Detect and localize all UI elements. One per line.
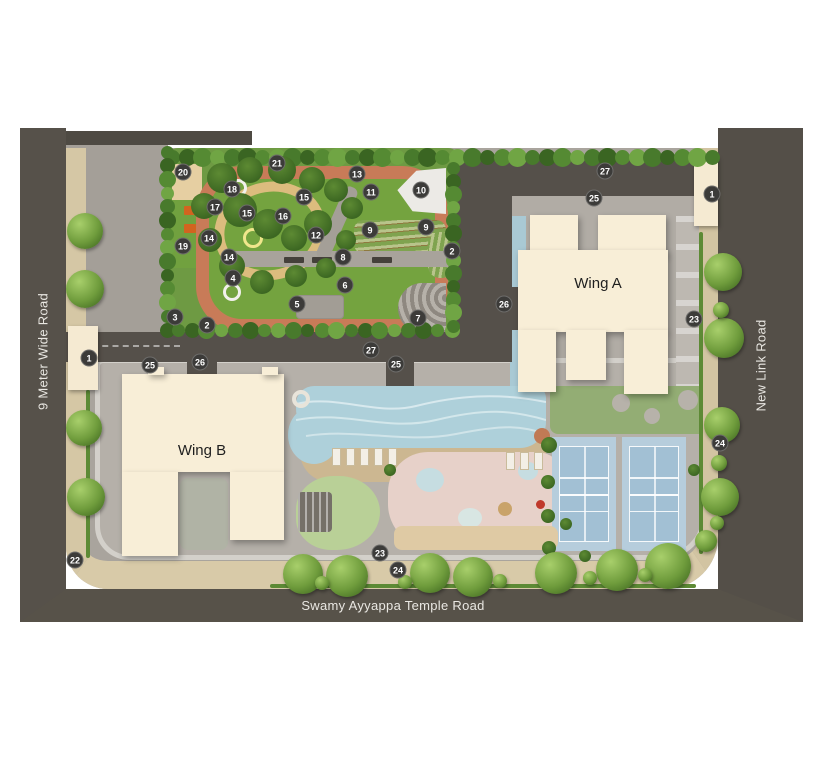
wing-a-building [598, 215, 666, 255]
hedge-strip-west [86, 390, 90, 558]
internal-drive [66, 332, 512, 362]
wing-b-building [230, 472, 284, 540]
road-label-right: New Link Road [754, 296, 769, 436]
wing-a-building [530, 215, 578, 255]
hedge-strip-east [699, 232, 703, 554]
entrance-gate-west [68, 326, 98, 390]
road-label-left: 9 Meter Wide Road [36, 272, 51, 432]
lane-marking [92, 345, 180, 347]
wing-b-building [262, 367, 278, 375]
wing-b-building [122, 472, 178, 556]
site-master-plan: 9 Meter Wide Road New Link Road Swamy Ay… [0, 0, 834, 768]
road-label-bottom: Swamy Ayyappa Temple Road [193, 598, 593, 613]
wing-b-building [148, 367, 164, 375]
hedge-strip-south [270, 584, 696, 588]
wing-a-building [518, 330, 556, 392]
wing-a-building [566, 330, 606, 380]
internal-drive-north [456, 158, 700, 196]
wing-b-label: Wing B [152, 442, 252, 459]
wing-a-building [624, 330, 668, 394]
wing-a-label: Wing A [548, 275, 648, 292]
boundary-wall [66, 131, 252, 145]
podium-entrance-canopy [386, 362, 414, 386]
entrance-gate-east [694, 156, 718, 226]
